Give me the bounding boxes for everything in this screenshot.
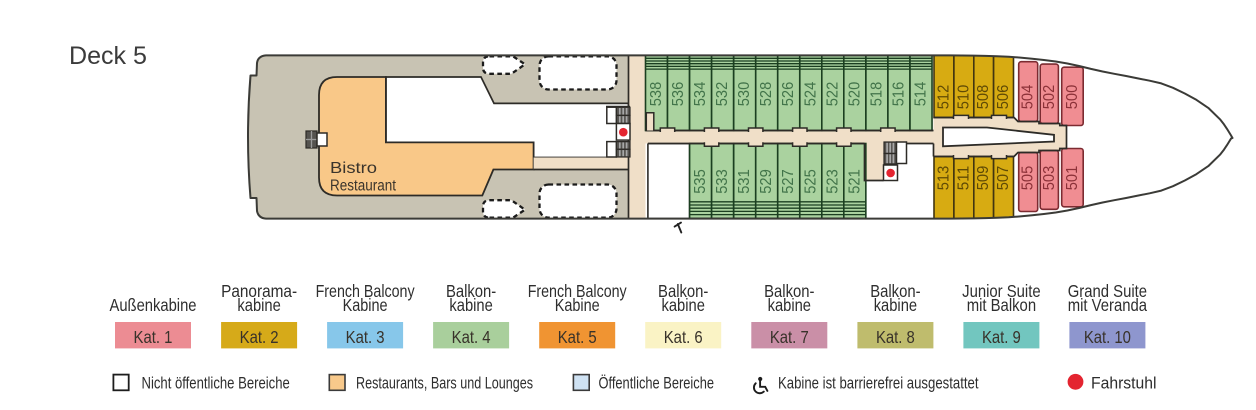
svg-text:Kat. 3: Kat. 3 [346,327,385,347]
svg-text:501: 501 [1064,166,1081,191]
svg-text:504: 504 [1020,85,1037,110]
svg-text:536: 536 [670,82,687,107]
svg-text:512: 512 [936,85,953,110]
svg-text:Restaurant: Restaurant [330,178,397,195]
svg-text:510: 510 [955,85,972,110]
svg-text:529: 529 [758,169,775,194]
svg-text:530: 530 [736,82,753,107]
svg-text:514: 514 [913,82,930,107]
svg-text:Kat. 10: Kat. 10 [1084,327,1131,347]
svg-text:Kat. 9: Kat. 9 [982,327,1021,347]
svg-text:533: 533 [714,169,731,194]
svg-text:Kat. 8: Kat. 8 [876,327,915,347]
svg-text:518: 518 [868,82,885,107]
svg-text:Kat. 2: Kat. 2 [240,327,279,347]
svg-text:Kabine: Kabine [555,295,600,315]
svg-text:kabine: kabine [768,295,811,315]
svg-text:Deck 5: Deck 5 [69,42,147,70]
svg-text:505: 505 [1020,166,1037,191]
svg-text:511: 511 [955,166,972,191]
svg-text:522: 522 [824,82,841,107]
svg-text:Kat. 1: Kat. 1 [134,327,173,347]
svg-text:kabine: kabine [874,295,917,315]
svg-text:Bistro: Bistro [330,160,377,177]
svg-text:Kat. 7: Kat. 7 [770,327,809,347]
svg-text:516: 516 [890,82,907,107]
svg-text:534: 534 [692,82,709,107]
svg-text:535: 535 [692,169,709,194]
svg-text:520: 520 [846,82,863,107]
svg-text:513: 513 [936,166,953,191]
svg-text:502: 502 [1041,85,1058,110]
svg-text:Öffentliche Bereiche: Öffentliche Bereiche [599,373,715,392]
svg-text:509: 509 [975,166,992,191]
svg-text:Kat. 6: Kat. 6 [664,327,703,347]
svg-text:524: 524 [802,82,819,107]
svg-text:507: 507 [995,166,1012,191]
svg-text:523: 523 [824,169,841,194]
svg-text:Kat. 4: Kat. 4 [452,327,491,347]
svg-text:528: 528 [758,82,775,107]
svg-text:mit Balkon: mit Balkon [967,295,1036,315]
svg-text:Fahrstuhl: Fahrstuhl [1091,373,1157,392]
svg-text:Kabine: Kabine [343,295,388,315]
svg-text:Nicht öffentliche Bereiche: Nicht öffentliche Bereiche [142,373,290,392]
svg-text:527: 527 [780,169,797,194]
svg-text:mit Veranda: mit Veranda [1068,295,1148,315]
svg-text:506: 506 [995,85,1012,110]
svg-text:526: 526 [780,82,797,107]
svg-text:500: 500 [1064,85,1081,110]
svg-text:Außenkabine: Außenkabine [110,295,197,315]
svg-text:Restaurants, Bars und Lounges: Restaurants, Bars und Lounges [356,373,533,392]
svg-text:521: 521 [846,169,863,194]
svg-text:503: 503 [1041,166,1058,191]
svg-text:Kabine ist barrierefrei ausges: Kabine ist barrierefrei ausgestattet [778,373,979,392]
svg-text:kabine: kabine [449,295,492,315]
svg-text:Kat. 5: Kat. 5 [558,327,597,347]
svg-text:508: 508 [975,85,992,110]
svg-text:kabine: kabine [237,295,280,315]
svg-text:525: 525 [802,169,819,194]
svg-text:kabine: kabine [662,295,705,315]
svg-text:538: 538 [648,82,665,107]
svg-text:532: 532 [714,82,731,107]
svg-text:531: 531 [736,169,753,194]
